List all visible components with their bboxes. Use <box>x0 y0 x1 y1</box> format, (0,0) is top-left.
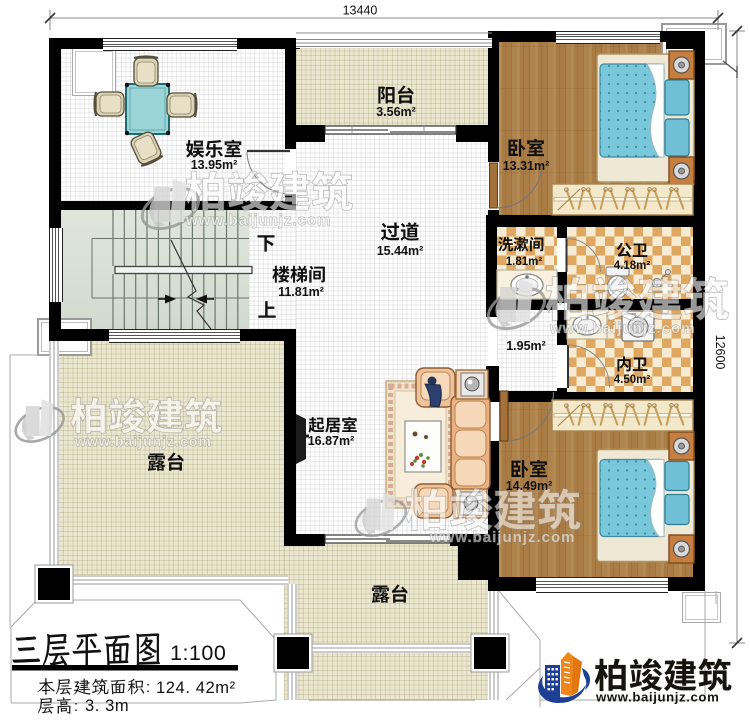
svg-text:1.81m²: 1.81m² <box>506 256 543 268</box>
svg-text:16.87m²: 16.87m² <box>308 434 355 448</box>
svg-text::: : <box>146 679 150 696</box>
svg-text:15.44m²: 15.44m² <box>377 244 424 258</box>
svg-text:3.56m²: 3.56m² <box>376 105 416 119</box>
svg-text:3. 3m: 3. 3m <box>85 697 129 715</box>
svg-text:14.49m²: 14.49m² <box>506 479 553 493</box>
svg-text:www.baijunjz.com: www.baijunjz.com <box>549 320 695 337</box>
svg-text:13.31m²: 13.31m² <box>503 159 550 173</box>
svg-text:1:100: 1:100 <box>170 641 226 665</box>
svg-text:4.50m²: 4.50m² <box>614 374 651 386</box>
svg-text:4.18m²: 4.18m² <box>614 260 651 272</box>
svg-text:12600: 12600 <box>713 335 727 370</box>
svg-text:www.baijunjz.com: www.baijunjz.com <box>595 690 719 705</box>
svg-text:www.baijunjz.com: www.baijunjz.com <box>74 433 212 449</box>
svg-text:124. 42m²: 124. 42m² <box>156 679 236 697</box>
svg-text:11.81m²: 11.81m² <box>278 285 324 299</box>
svg-text:13440: 13440 <box>343 4 378 18</box>
svg-text:1.95m²: 1.95m² <box>506 339 546 353</box>
svg-text:www.baijunjz.com: www.baijunjz.com <box>429 529 575 546</box>
svg-text::: : <box>74 698 78 715</box>
svg-text:13.95m²: 13.95m² <box>191 158 238 172</box>
svg-text:www.baijunjz.com: www.baijunjz.com <box>185 212 331 229</box>
